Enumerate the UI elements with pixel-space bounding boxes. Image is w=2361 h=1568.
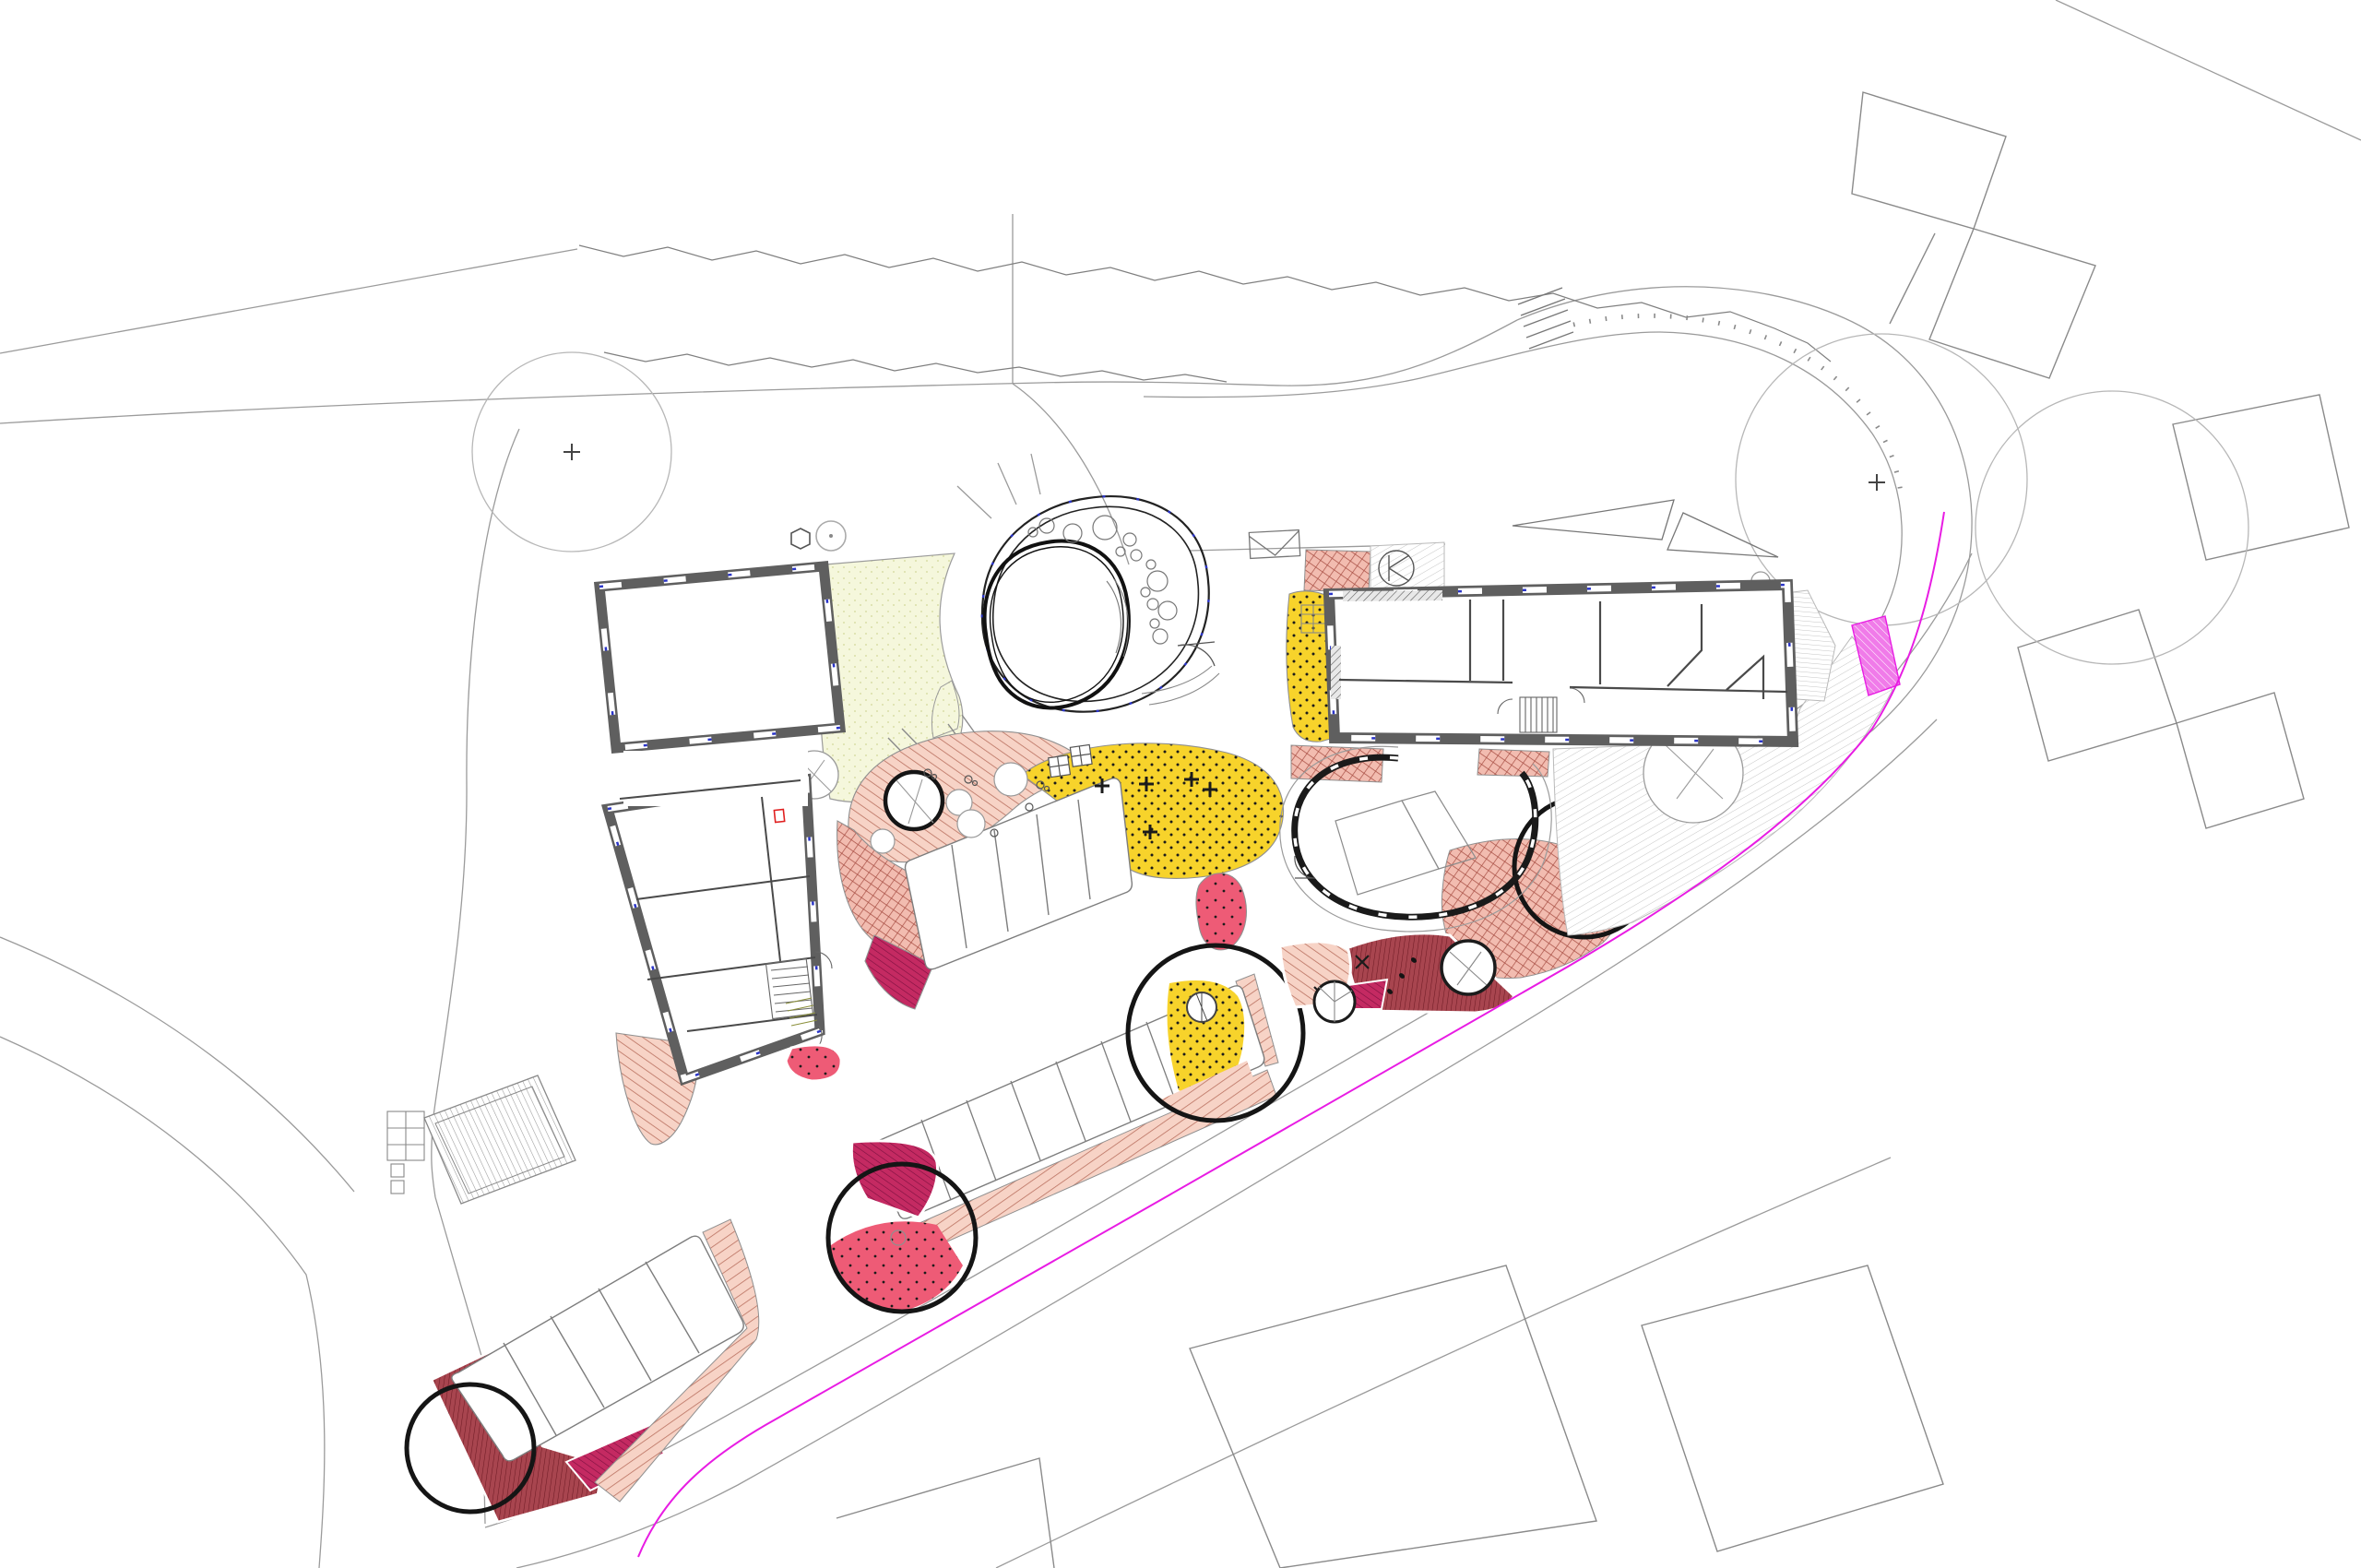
neighbor-house-1 [1852, 92, 2006, 229]
barn-existing [424, 1075, 575, 1204]
neighbor-house-7 [1642, 1265, 1943, 1551]
neighbor-house-2 [1929, 229, 2095, 378]
east-wall-hatch-1 [1343, 590, 1442, 601]
grate-vee [1249, 531, 1299, 557]
west-square-hall [599, 566, 840, 748]
tree-cross-east [1869, 474, 1885, 491]
tree-cross-west [564, 444, 580, 460]
corner-boundary-ne [2056, 0, 2361, 140]
tree-canopy-c [994, 763, 1027, 796]
building-east [1287, 542, 1793, 782]
vegetation-edge-north [579, 245, 1831, 362]
hexagon-bollard [791, 529, 810, 549]
sight-triangle-1 [1513, 500, 1674, 540]
vegetation-edges [579, 245, 1831, 382]
road-barn-lower [0, 1037, 325, 1568]
west-wing [608, 779, 820, 1079]
road-barn-upper [0, 937, 354, 1192]
shed-grid [387, 1111, 424, 1194]
building-west [599, 521, 846, 1145]
road-symbols [1249, 288, 1902, 590]
bollard-dot [829, 534, 833, 538]
east-outline [1329, 585, 1793, 742]
road-lower-edge [0, 320, 1517, 423]
building-east-walls [1329, 585, 1793, 742]
neighbor-house-6 [1190, 1265, 1596, 1568]
building-west-walls [599, 566, 840, 1079]
masonry-grid-north [1304, 550, 1370, 592]
site-plan-drawing [0, 0, 2361, 1568]
pavilion-step-arcs [1142, 666, 1219, 705]
sight-triangle-2 [1667, 513, 1778, 557]
tree-canopy-b [957, 810, 985, 837]
road-upper-edge [0, 249, 577, 353]
neighbor-house-8 [836, 1458, 1054, 1568]
grate-rectangle [1249, 530, 1299, 559]
tree-canopy-east-2 [1975, 391, 2248, 664]
pavilion-inner-room [985, 541, 1129, 708]
path-fan-lines [957, 454, 1040, 518]
red-exit-triangle [786, 1045, 841, 1081]
vegetation-edge-south [604, 352, 1227, 382]
masonry-grid-south-2 [1477, 749, 1549, 777]
west-seam [623, 751, 808, 806]
street-edge-3 [996, 1158, 1891, 1568]
crimson-wedge [851, 1141, 937, 1218]
neighbor-house-3 [2173, 395, 2349, 560]
neighbor-house-link [1890, 233, 1935, 324]
red-dotted-blob [1196, 873, 1246, 950]
pavilion-inner-room-line [991, 547, 1123, 702]
neighbor-house-4 [2018, 610, 2177, 761]
red-dotted-shape [1196, 873, 1246, 950]
neighbor-house-5 [2177, 693, 2304, 828]
tree-ring-white-1 [1442, 941, 1495, 994]
pavilion-pebble-circles [1028, 516, 1177, 644]
round-pavilion [982, 496, 1219, 712]
bollard-pair [791, 521, 846, 551]
east-wall-hatch-2 [1331, 646, 1341, 699]
hatched-court-north [1370, 542, 1444, 592]
southwest-area [387, 1075, 759, 1522]
tree-canopy-d [871, 829, 895, 853]
site-boundary-west [432, 429, 519, 1197]
site-plan-canvas [0, 0, 2361, 1568]
